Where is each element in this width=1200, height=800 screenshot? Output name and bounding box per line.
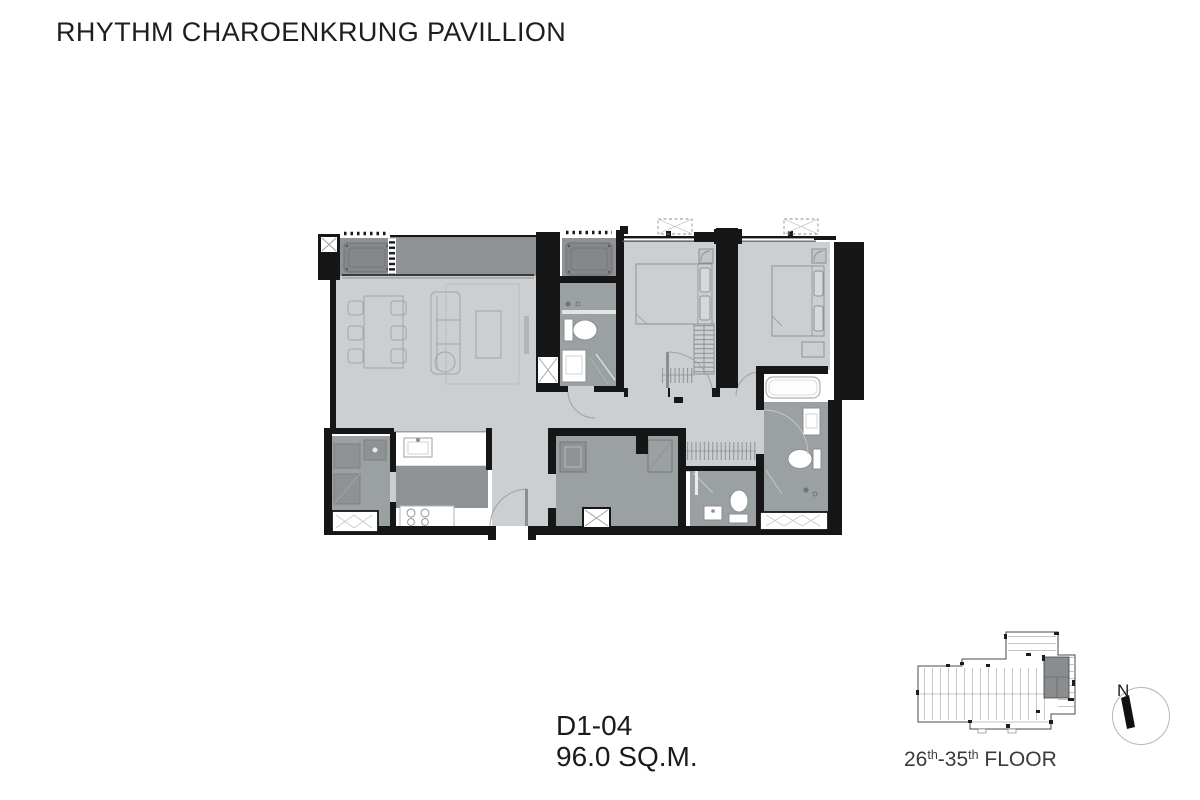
window-line — [742, 236, 816, 238]
kitchen-counter-low — [394, 466, 488, 508]
toilet-bowl — [730, 490, 748, 512]
vanity-sink — [562, 350, 586, 382]
north-label: N — [1117, 681, 1129, 700]
pillow — [814, 271, 823, 296]
entrance-door-leaf — [525, 489, 528, 527]
sliding-door-line — [342, 274, 534, 276]
entrance-gap — [496, 526, 528, 535]
door-leaf — [695, 470, 698, 495]
toilet-tank — [564, 319, 573, 341]
ac-ledge — [332, 511, 378, 532]
tv-panel — [524, 316, 529, 354]
vanity-sink — [803, 408, 820, 435]
pillow — [700, 268, 710, 292]
living-dining-floor — [336, 276, 536, 432]
pillow — [814, 306, 823, 331]
toilet-bowl — [573, 320, 597, 340]
central-column — [536, 232, 560, 356]
foyer-floor — [492, 432, 548, 528]
key-plan-map — [908, 622, 1088, 740]
pillow — [700, 296, 710, 320]
compass-needle — [1121, 695, 1135, 729]
shower-head-icon — [566, 302, 571, 307]
bedroom-divider-wall — [716, 228, 738, 388]
toilet-tank — [813, 449, 821, 469]
page-title: RHYTHM CHAROENKRUNG PAVILLION — [56, 17, 566, 48]
unit-highlight — [1044, 657, 1069, 698]
shower-head-icon — [804, 488, 809, 493]
unit-label: D1-04 96.0 SQ.M. — [556, 710, 698, 772]
floor-range-label: 26th-35th FLOOR — [904, 748, 1057, 772]
floorplan-sheet: RHYTHM CHAROENKRUNG PAVILLION — [0, 0, 1200, 800]
east-wall — [834, 242, 864, 400]
floor-plan-drawing — [316, 218, 868, 554]
north-indicator: N — [1103, 677, 1177, 751]
unit-code-label: D1-04 — [556, 710, 698, 741]
unit-area-label: 96.0 SQ.M. — [556, 741, 698, 772]
basin — [704, 506, 722, 520]
kitchen-sink-faucet — [416, 438, 420, 442]
toilet-tank — [729, 514, 748, 523]
